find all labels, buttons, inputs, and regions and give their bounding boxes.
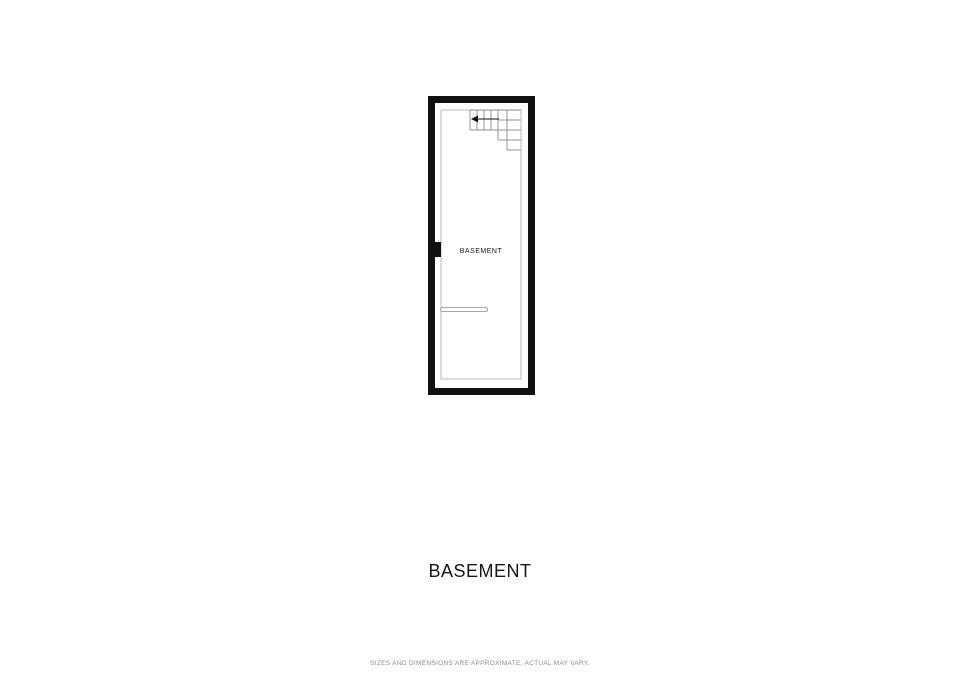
basement-floorplan [420,90,545,402]
page-title: BASEMENT [0,561,960,582]
disclaimer-text: SIZES AND DIMENSIONS ARE APPROXIMATE, AC… [0,660,960,667]
partition-bar [441,308,488,312]
room-label: BASEMENT [401,248,561,255]
page-canvas: BASEMENT BASEMENT SIZES AND DIMENSIONS A… [0,0,960,678]
outer-wall [432,100,532,392]
